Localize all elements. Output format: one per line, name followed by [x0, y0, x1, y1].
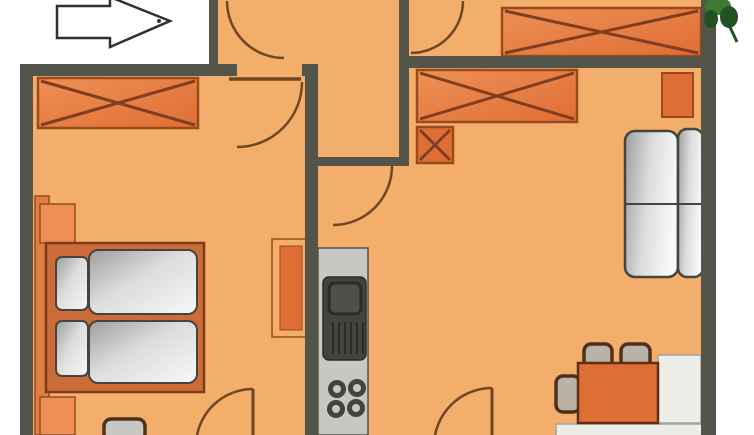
hall-wardrobe	[502, 8, 701, 56]
sink-basin	[329, 283, 361, 314]
chair-west	[556, 376, 580, 412]
double-bed	[46, 243, 204, 392]
kitchen-block	[318, 248, 368, 435]
wall-bedroom-top	[20, 64, 237, 76]
shoe-cabinet	[417, 127, 453, 163]
wall-kitchen-stub	[318, 157, 407, 166]
arrow-tip-dot	[157, 19, 161, 23]
wall-left-outer	[20, 64, 33, 435]
pillow-bottom	[56, 321, 88, 376]
dining-table	[578, 363, 658, 423]
living-room-wardrobe	[417, 70, 577, 122]
duvet-bottom	[89, 321, 197, 383]
wall-corridor-right	[399, 0, 409, 166]
duvet-top	[89, 250, 197, 314]
side-table	[662, 73, 693, 117]
nightstand-bottom	[40, 397, 75, 435]
sofa	[625, 129, 703, 277]
bench-horizontal	[556, 424, 708, 435]
bench-vertical	[658, 355, 701, 423]
dresser	[272, 239, 306, 337]
plant-leaf	[704, 10, 718, 28]
apartment-floor-plan	[0, 0, 754, 435]
wall-hall-left	[209, 0, 218, 66]
pillow-top	[56, 257, 88, 310]
bedroom-wardrobe	[38, 78, 198, 128]
dresser-top	[280, 246, 302, 330]
wall-divider-center	[305, 64, 318, 435]
wall-right-outer	[701, 0, 716, 435]
wall-living-top	[399, 56, 701, 68]
floor-plan-page	[0, 0, 754, 435]
stool	[104, 419, 145, 435]
nightstand-top	[40, 204, 75, 243]
